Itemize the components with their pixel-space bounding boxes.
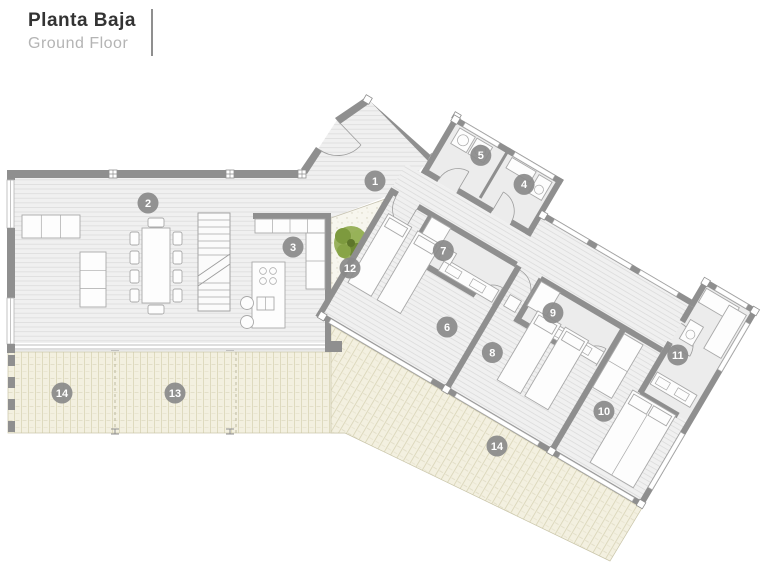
svg-text:10: 10 bbox=[598, 406, 610, 418]
room-badge-13: 13 bbox=[165, 383, 186, 404]
svg-text:14: 14 bbox=[491, 441, 504, 453]
room-badge-10: 10 bbox=[593, 401, 614, 422]
kitchen-island bbox=[252, 262, 285, 328]
svg-text:3: 3 bbox=[290, 242, 296, 254]
svg-text:2: 2 bbox=[145, 198, 151, 210]
room-badge-4: 4 bbox=[514, 174, 535, 195]
svg-text:8: 8 bbox=[489, 347, 495, 359]
svg-text:1: 1 bbox=[372, 176, 378, 188]
staircase bbox=[198, 213, 230, 311]
svg-text:11: 11 bbox=[672, 350, 684, 362]
room-badge-11: 11 bbox=[667, 344, 688, 365]
room-badge-3: 3 bbox=[283, 237, 304, 258]
kitchen-wall-top bbox=[253, 213, 331, 219]
svg-text:13: 13 bbox=[169, 388, 181, 400]
room-badge-14: 14 bbox=[52, 383, 73, 404]
room-badge-1: 1 bbox=[365, 171, 386, 192]
room-badge-9: 9 bbox=[542, 302, 563, 323]
wall-west bbox=[7, 170, 15, 353]
kitchen-counter bbox=[255, 219, 325, 233]
kitchen-tall-units bbox=[306, 233, 325, 289]
svg-text:12: 12 bbox=[344, 263, 356, 275]
room-badge-8: 8 bbox=[482, 342, 503, 363]
svg-text:14: 14 bbox=[56, 388, 69, 400]
svg-text:4: 4 bbox=[521, 179, 528, 191]
svg-text:6: 6 bbox=[444, 322, 450, 334]
room-badge-12: 12 bbox=[340, 258, 361, 279]
room-badge-6: 6 bbox=[437, 317, 458, 338]
room-badge-7: 7 bbox=[433, 240, 454, 261]
svg-text:9: 9 bbox=[550, 308, 556, 320]
room-badge-5: 5 bbox=[470, 145, 491, 166]
sofa-vertical bbox=[80, 252, 106, 307]
room-badge-14: 14 bbox=[487, 436, 508, 457]
floor-plan-drawing: 123121314145479681011 bbox=[0, 0, 764, 574]
kitchen-wall-east bbox=[325, 213, 331, 352]
wall-north bbox=[8, 170, 304, 178]
room-badge-2: 2 bbox=[138, 193, 159, 214]
svg-text:7: 7 bbox=[440, 245, 446, 257]
svg-text:5: 5 bbox=[478, 150, 484, 162]
sofa-horizontal bbox=[22, 215, 80, 238]
floor-plan-page: Planta Baja Ground Floor bbox=[0, 0, 764, 574]
